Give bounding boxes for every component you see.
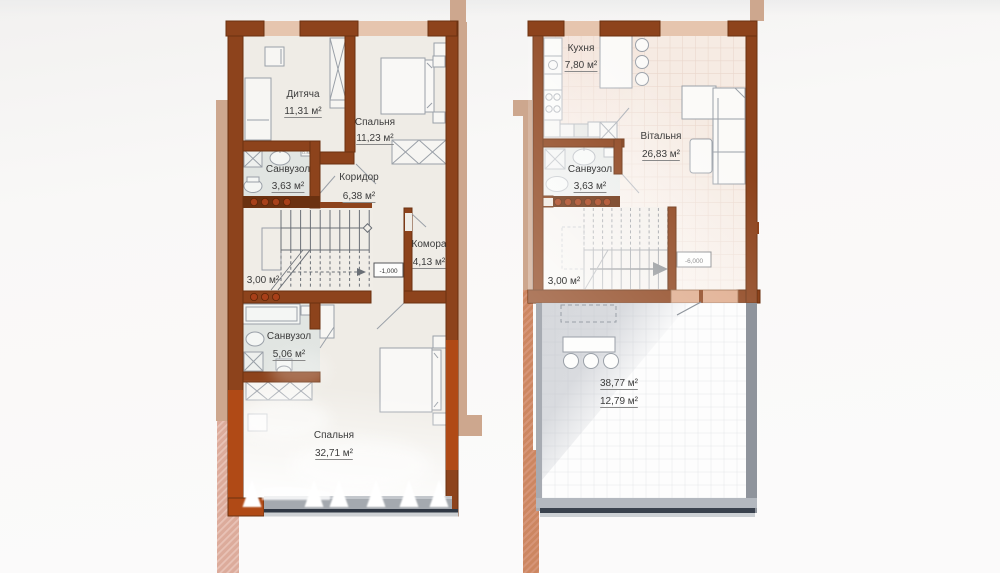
svg-text:3,00 м²: 3,00 м² xyxy=(548,276,581,287)
svg-text:5,06 м²: 5,06 м² xyxy=(273,349,306,360)
svg-text:7,80 м²: 7,80 м² xyxy=(565,60,598,71)
svg-text:12,79 м²: 12,79 м² xyxy=(600,396,639,407)
svg-text:Спальня: Спальня xyxy=(355,117,395,128)
svg-text:11,23 м²: 11,23 м² xyxy=(356,133,394,144)
svg-text:Кухня: Кухня xyxy=(568,43,595,54)
svg-text:Спальня: Спальня xyxy=(314,430,354,441)
svg-text:32,71 м²: 32,71 м² xyxy=(315,448,354,459)
svg-text:Комора: Комора xyxy=(412,239,447,250)
svg-text:6,38 м²: 6,38 м² xyxy=(343,191,376,202)
svg-text:Санвузол: Санвузол xyxy=(266,164,310,175)
svg-text:3,63 м²: 3,63 м² xyxy=(574,181,607,192)
svg-text:38,77 м²: 38,77 м² xyxy=(600,378,639,389)
svg-text:Дитяча: Дитяча xyxy=(286,89,320,100)
svg-text:-1,000: -1,000 xyxy=(379,268,398,275)
svg-text:11,31 м²: 11,31 м² xyxy=(284,106,322,117)
svg-text:Вітальня: Вітальня xyxy=(641,131,682,142)
svg-text:Коридор: Коридор xyxy=(339,172,379,183)
svg-text:3,00 м²: 3,00 м² xyxy=(247,275,280,286)
svg-text:26,83 м²: 26,83 м² xyxy=(642,149,681,160)
svg-text:Санвузол: Санвузол xyxy=(267,331,311,342)
svg-text:Санвузол: Санвузол xyxy=(568,164,612,175)
svg-text:4,13 м²: 4,13 м² xyxy=(413,257,446,268)
svg-text:3,63 м²: 3,63 м² xyxy=(272,181,305,192)
